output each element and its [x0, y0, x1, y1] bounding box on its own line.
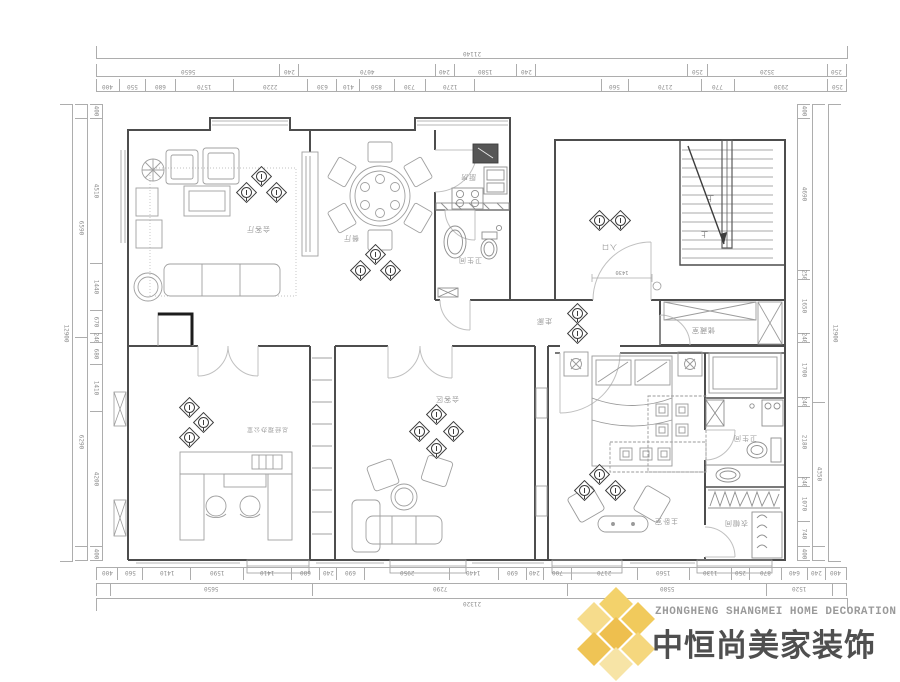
dim-segment: 240: [526, 567, 543, 580]
dim-segment: 1650: [797, 279, 810, 333]
meeting-room-furniture: [352, 388, 547, 552]
dim-segment: 740: [797, 521, 810, 546]
dim-segment: 560: [117, 567, 142, 580]
dim-segment: [474, 79, 600, 92]
dim-segment: 250: [687, 64, 706, 77]
dim-segment: 400: [96, 79, 119, 92]
dim-segment: 560: [601, 79, 628, 92]
dim-segment: 240: [90, 333, 103, 342]
dim-top-mid: 5650240407024015802402503520250: [96, 64, 847, 77]
dim-top-inner: 4005506801570222063041085073012705602170…: [96, 79, 847, 92]
dim-segment: 690: [498, 567, 526, 580]
dim-segment: 1070: [797, 486, 810, 521]
dim-segment: 700: [543, 567, 571, 580]
dim-left-inner: 4004510144067024068014104200400: [90, 104, 103, 561]
dim-segment: [535, 64, 688, 77]
ceiling-lamp-symbol: [182, 400, 197, 415]
dim-segment: 4690: [797, 118, 810, 270]
dim-segment: 240: [279, 64, 298, 77]
dim-segment: 1440: [90, 263, 103, 310]
room-label-corridor: 走廊: [536, 316, 552, 326]
dim-segment: 5650: [110, 583, 311, 596]
dim-segment: 550: [119, 79, 146, 92]
svg-text:上: 上: [707, 194, 714, 203]
dim-segment: [96, 583, 110, 596]
dim-segment: 2170: [628, 79, 702, 92]
dim-segment: 6590: [75, 118, 88, 337]
dim-segment: 680: [90, 342, 103, 365]
dim-segment: 400: [797, 546, 810, 560]
dim-segment: 250: [827, 64, 846, 77]
stair-up-labels: 上 上: [701, 194, 714, 239]
dim-segment: 4200: [90, 411, 103, 547]
dim-segment: 2930: [734, 79, 828, 92]
ceiling-lamp-symbol: [570, 306, 585, 321]
dim-segment: 1560: [637, 567, 689, 580]
dim-segment: 1570: [175, 79, 232, 92]
room-label-entry: 入口: [601, 242, 617, 252]
ceiling-lamp-symbol: [613, 213, 628, 228]
dim-segment: 1590: [190, 567, 243, 580]
dim-segment: 6290: [75, 337, 88, 546]
dim-segment: 400: [90, 546, 103, 560]
dim-segment: 770: [701, 79, 733, 92]
dim-segment: 400: [96, 567, 117, 580]
dim-segment: 2180: [797, 406, 810, 477]
dim-segment: 640: [781, 567, 808, 580]
svg-text:上: 上: [701, 230, 708, 239]
room-label-office: 总经理办公室: [246, 426, 288, 435]
dim-segment: 4510: [90, 118, 103, 264]
room-label-dining: 餐厅: [343, 233, 359, 243]
staircase: [682, 140, 773, 258]
room-label-bath1: 卫生间: [458, 255, 482, 265]
ceiling-lamp-symbol: [570, 326, 585, 341]
dim-segment: 240: [807, 567, 824, 580]
dim-segment: 4070: [298, 64, 434, 77]
room-label-storage: 储藏室: [691, 325, 715, 335]
dim-segment: 250: [797, 270, 810, 279]
dim-segment: 1410: [243, 567, 291, 580]
ceiling-lamp-symbol: [254, 169, 269, 184]
dim-segment: 630: [307, 79, 336, 92]
ceiling-lamp-symbol: [182, 430, 197, 445]
dim-bottom-inner: 4005601410159014106802406902950144069024…: [96, 567, 847, 580]
ceiling-lamp-symbol: [196, 415, 211, 430]
dim-segment: 5650: [96, 64, 279, 77]
entry-width-dim: 1430: [615, 269, 628, 275]
ceiling-lamp-symbol: [446, 424, 461, 439]
dim-segment: 250: [731, 567, 749, 580]
dim-segment: [75, 546, 88, 560]
logo-text-cn: 中恒尚美家装饰: [652, 620, 900, 665]
dim-segment: 870: [749, 567, 781, 580]
floor-plan-sheet: 上 上: [0, 0, 900, 682]
dim-segment: 2950: [364, 567, 448, 580]
dim-segment: 670: [90, 310, 103, 332]
dim-segment: 7290: [312, 583, 567, 596]
ceiling-lamp-symbol: [429, 407, 444, 422]
dim-segment: 400: [797, 104, 810, 118]
dim-segment: 1410: [90, 364, 103, 410]
dim-segment: 240: [319, 567, 336, 580]
room-label-bedroom: 主卧室: [654, 516, 678, 526]
ceiling-lamp-symbol: [429, 441, 444, 456]
dim-segment: 1270: [425, 79, 474, 92]
dim-right-overall: 12900: [828, 104, 841, 562]
dim-segment: 3520: [707, 64, 827, 77]
dim-segment: 240: [797, 333, 810, 342]
dim-segment: 400: [825, 567, 846, 580]
dim-segment: 1580: [454, 64, 516, 77]
room-label-meeting: 会客区: [435, 394, 459, 404]
dim-segment: 1410: [142, 567, 190, 580]
ceiling-lamp-symbol: [269, 185, 284, 200]
ceiling-lamp-symbol: [412, 424, 427, 439]
dim-top-overall: 21140: [96, 46, 848, 59]
dim-segment: 240: [797, 477, 810, 486]
dim-segment: 730: [394, 79, 425, 92]
dim-segment: 1700: [797, 342, 810, 398]
dim-segment: 240: [797, 397, 810, 406]
dim-left-overall: 12900: [60, 104, 73, 562]
column: [158, 313, 193, 346]
dim-segment: [812, 546, 825, 560]
dim-segment: 1440: [449, 567, 498, 580]
room-label-closet: 衣帽间: [724, 518, 748, 528]
living-room-furniture: [134, 148, 318, 301]
dim-right-mid: 4350: [812, 104, 825, 561]
ceiling-lamp-symbol: [577, 483, 592, 498]
dim-segment: 410: [336, 79, 359, 92]
dim-left-mid: 65906290: [75, 104, 88, 561]
logo-text-en: ZHONGHENG SHANGMEI HOME DECORATION: [655, 606, 900, 618]
room-label-bath2: 卫生间: [733, 433, 757, 443]
dim-segment: 240: [435, 64, 454, 77]
ceiling-lamp-symbol: [592, 467, 607, 482]
ceiling-lamp-symbol: [239, 185, 254, 200]
dim-segment: 1130: [689, 567, 731, 580]
dim-segment: 680: [291, 567, 319, 580]
dim-segment: 2170: [571, 567, 637, 580]
ceiling-lamp-symbol: [608, 483, 623, 498]
ceiling-lamp-symbol: [353, 263, 368, 278]
dim-segment: [812, 104, 825, 402]
dim-segment: [75, 104, 88, 118]
dim-segment: 250: [827, 79, 846, 92]
dim-segment: 680: [145, 79, 175, 92]
ceiling-lamp-symbol: [368, 247, 383, 262]
dim-segment: 400: [90, 104, 103, 118]
storage-hatch: [664, 302, 782, 344]
company-logo: ZHONGHENG SHANGMEI HOME DECORATION 中恒尚美家…: [560, 588, 900, 682]
dim-right-inner: 4004690250165024017002402180240107074040…: [797, 104, 810, 561]
dim-segment: 240: [516, 64, 535, 77]
room-label-living: 会客厅: [246, 224, 270, 234]
ceiling-lamp-symbol: [383, 263, 398, 278]
dim-segment: 690: [336, 567, 364, 580]
room-label-kitchen: 厨房: [460, 172, 476, 182]
dim-segment: 2220: [233, 79, 308, 92]
dim-segment: 850: [359, 79, 394, 92]
dim-segment: 4350: [812, 402, 825, 546]
ceiling-lamp-symbol: [592, 213, 607, 228]
